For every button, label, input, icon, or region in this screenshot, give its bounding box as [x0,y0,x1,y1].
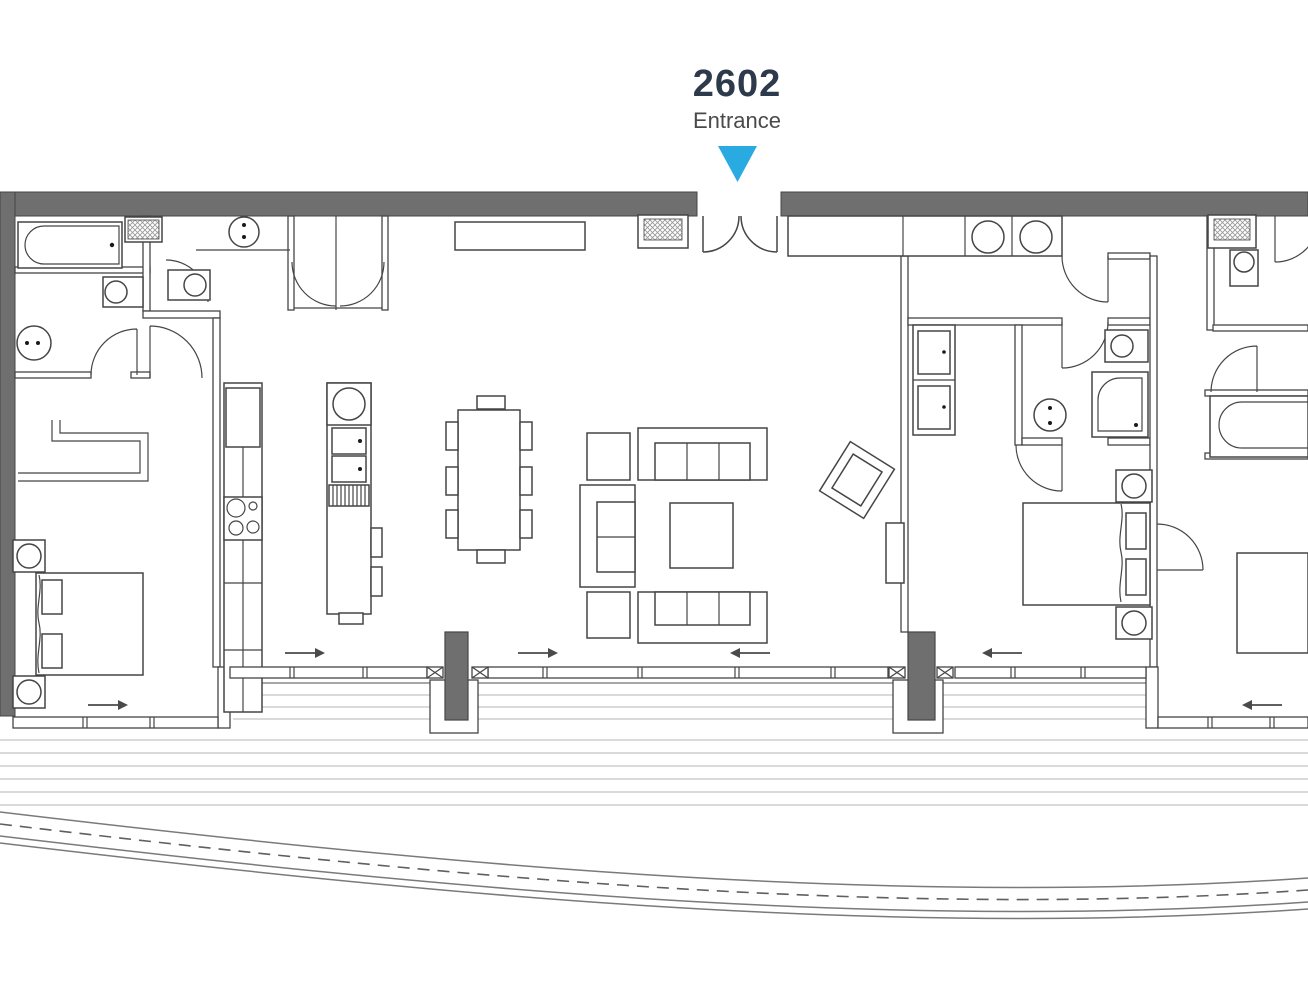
washer [972,221,1004,253]
pillow [1126,513,1146,549]
sofa-left [580,485,635,587]
shaft-hatch-entrance [644,219,682,240]
desk-left [18,420,140,473]
side-table [587,433,630,480]
bar-stool [371,528,382,557]
bar-stool [371,567,382,596]
sink-round-master [17,326,51,360]
dining-table [458,410,520,550]
sofa-top [638,428,767,480]
slide-direction-arrows [88,648,1282,710]
balcony-curved-edge [0,812,1308,919]
column-right [908,632,935,720]
dryer [1020,221,1052,253]
side-table [587,592,630,638]
pillow [42,634,62,668]
pillow [1126,559,1146,595]
console-shelf [886,523,904,583]
console-table [455,222,585,250]
suite-right [1210,250,1308,653]
floor-plan-page: 2602 Entrance [0,0,1308,981]
lamp [17,544,41,568]
balcony-deck [0,683,1308,805]
island-sink [333,388,365,420]
bedroom-left [13,420,148,708]
sink-vanity [229,217,259,247]
ensuite-middle [1034,330,1148,437]
lamp [17,680,41,704]
bed-right [1237,553,1308,653]
shaft-hatch-right [1214,219,1250,240]
pillow [42,580,62,614]
dining-set [446,396,532,563]
armchair [820,442,895,519]
shower [1092,372,1148,437]
kitchen-island [327,383,382,624]
sink-ensuite [1034,399,1066,431]
entrance-arrow-icon [718,146,757,182]
laundry-counter [788,216,1062,256]
sofa-bottom [638,592,767,643]
coffee-table [670,503,733,568]
shaft-hatch-left [128,220,159,239]
kitchen-wall-counter [224,383,262,712]
column-left [445,632,468,720]
lamp [1122,611,1146,635]
lamp [1122,474,1146,498]
living-room-furniture [580,428,904,643]
floor-plan [0,0,1308,981]
entrance-double-door [703,216,777,252]
bar-stool [339,613,363,624]
